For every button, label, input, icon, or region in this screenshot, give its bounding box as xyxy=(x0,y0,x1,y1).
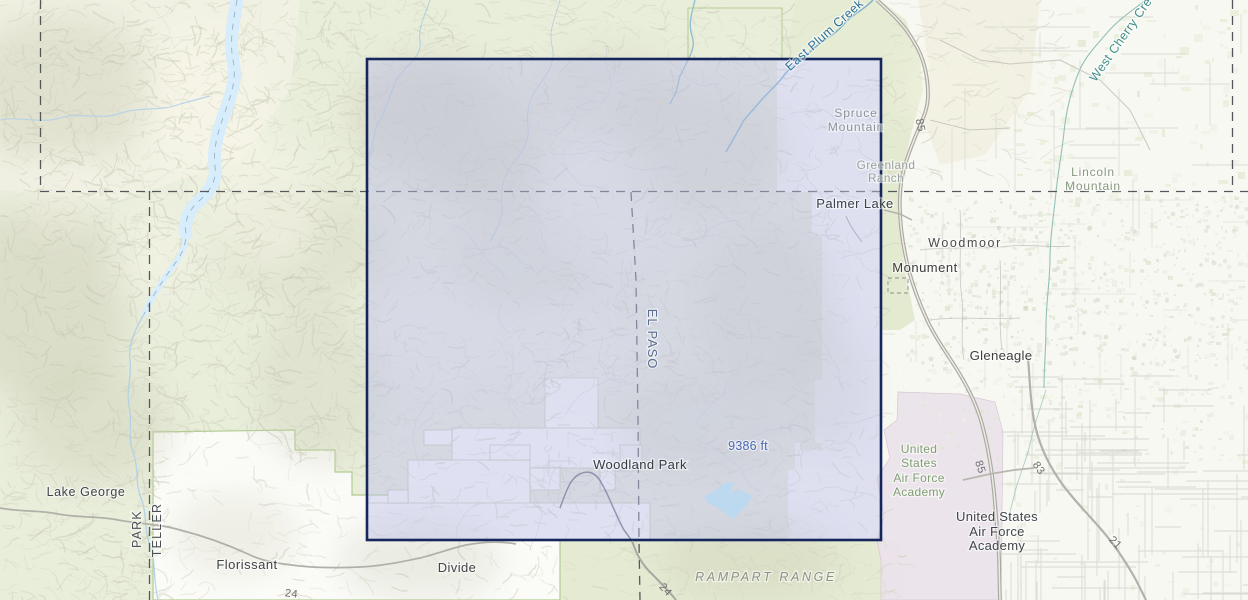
svg-text:Lake George: Lake George xyxy=(47,485,126,499)
svg-text:24: 24 xyxy=(284,587,299,600)
svg-text:Monument: Monument xyxy=(892,260,957,275)
svg-text:Palmer Lake: Palmer Lake xyxy=(816,196,893,211)
svg-text:Woodmoor: Woodmoor xyxy=(928,236,1002,250)
svg-text:9386 ft: 9386 ft xyxy=(728,439,768,453)
svg-text:EL PASO: EL PASO xyxy=(645,309,660,370)
svg-text:Woodland Park: Woodland Park xyxy=(593,457,687,472)
svg-text:United States: United States xyxy=(956,509,1038,524)
svg-text:Gleneagle: Gleneagle xyxy=(970,348,1033,363)
svg-text:Mountain: Mountain xyxy=(1065,179,1121,193)
svg-text:Lincoln: Lincoln xyxy=(1071,165,1115,179)
svg-text:Academy: Academy xyxy=(969,538,1025,553)
svg-text:Air Force: Air Force xyxy=(893,471,944,485)
svg-text:Divide: Divide xyxy=(438,560,477,575)
svg-text:Air Force: Air Force xyxy=(969,524,1024,539)
svg-text:Spruce: Spruce xyxy=(834,106,877,120)
svg-text:Academy: Academy xyxy=(893,485,945,499)
svg-text:United: United xyxy=(901,442,938,456)
svg-text:RAMPART RANGE: RAMPART RANGE xyxy=(695,570,837,584)
svg-text:Mountain: Mountain xyxy=(828,120,885,134)
svg-text:States: States xyxy=(901,456,937,470)
svg-text:Florissant: Florissant xyxy=(216,557,277,572)
svg-text:PARK: PARK xyxy=(130,510,144,548)
svg-text:Ranch: Ranch xyxy=(868,171,904,185)
svg-text:Greenland: Greenland xyxy=(857,158,916,172)
svg-text:TELLER: TELLER xyxy=(150,503,164,557)
